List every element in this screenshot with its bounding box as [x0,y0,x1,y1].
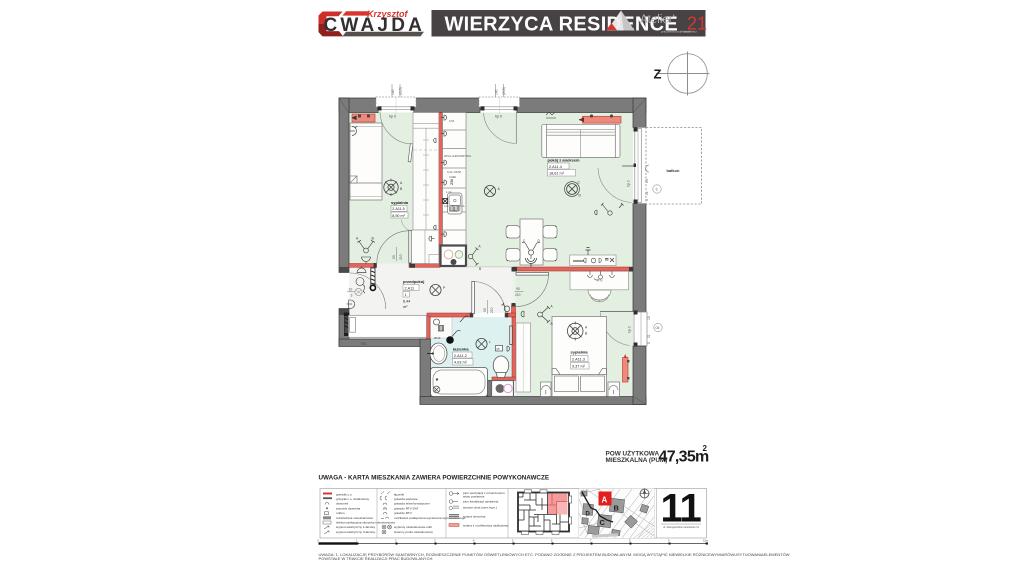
svg-text:gniazda teleinformatyczne: gniazda teleinformatyczne [394,502,430,506]
svg-text:2.A11: 2.A11 [405,286,415,290]
svg-text:Z: Z [654,67,662,82]
svg-text:A: A [602,496,608,505]
svg-text:10: 10 [647,316,651,320]
svg-text:2: 2 [395,539,397,543]
svg-text:4: 4 [473,539,475,543]
svg-text:90: 90 [516,287,520,291]
svg-text:B: B [551,322,553,326]
svg-text:2.A11.5: 2.A11.5 [392,207,404,211]
svg-text:grzejnik c.o.: grzejnik c.o. [336,492,353,496]
svg-text:210: 210 [515,293,521,297]
svg-text:5: 5 [512,539,514,543]
svg-text:21: 21 [645,191,649,195]
svg-text:140: 140 [495,89,499,95]
svg-text:ZM: ZM [449,179,454,185]
svg-text:2.A11.4: 2.A11.4 [549,165,562,169]
svg-text:balkon: balkon [667,168,680,173]
svg-text:wlotu powietrza: wlotu powietrza [463,494,485,498]
svg-text:18,61 m²: 18,61 m² [549,172,565,176]
svg-text:140: 140 [391,89,395,95]
svg-text:5: 5 [647,342,651,344]
svg-text:wymiar okna (szer./wys.): wymiar okna (szer./wys.) [463,506,497,510]
svg-text:6,44: 6,44 [403,300,410,304]
svg-text:hp 0: hp 0 [495,115,502,119]
svg-text:RTV: RTV [598,279,603,283]
svg-text:WPC/L ZLEWOZMYWKA: WPC/L ZLEWOZMYWKA [444,155,472,158]
svg-text:przycisk dzwonka: przycisk dzwonka [336,506,361,510]
svg-text:2F44: 2F44 [434,336,441,340]
svg-text:telekomunikacyjna skrzynka mie: telekomunikacyjna skrzynka mieszkaniowa [336,521,395,525]
svg-text:ściana z możliwością nadbudowy: ściana z możliwością nadbudowy [463,523,509,527]
svg-text:D: D [586,512,591,518]
svg-text:0,3m ZMYWARKA: 0,3m ZMYWARKA [444,205,465,208]
svg-text:wypust elektryczny 1-fazowy: wypust elektryczny 1-fazowy [336,525,376,529]
svg-text:9,37 m²: 9,37 m² [572,365,586,369]
svg-text:2: 2 [703,444,708,453]
svg-text:architekci: architekci [684,30,697,34]
svg-text:łazienka: łazienka [453,347,469,352]
svg-text:21: 21 [647,334,651,338]
svg-text:1,1m: 1,1m [446,190,453,194]
svg-text:CHEF: CHEF [449,175,457,179]
svg-text:(215): (215) [399,87,403,95]
svg-text:(215): (215) [502,87,506,95]
svg-text:04: 04 [656,326,660,330]
svg-text:UWAGA - KARTA MIESZKANIA ZAWIE: UWAGA - KARTA MIESZKANIA ZAWIERA POWIERZ… [319,475,550,482]
svg-text:grzejnik c.o. drabinkowy: grzejnik c.o. drabinkowy [336,497,369,501]
svg-text:rozdzielnica mieszkaniowa: rozdzielnica mieszkaniowa [336,516,373,520]
svg-text:dzwonek: dzwonek [336,502,349,506]
svg-text:3: 3 [656,188,658,192]
svg-text:8: 8 [629,539,631,543]
svg-text:B: B [614,504,620,513]
svg-text:47,35m: 47,35m [659,449,710,466]
svg-text:przedpokój: przedpokój [403,279,424,284]
svg-text:8,90 m²: 8,90 m² [392,214,405,218]
svg-text:ul. Starogardzka mieszkanie 11: ul. Starogardzka mieszkanie 11 [663,525,700,529]
svg-text:10m: 10m [703,539,708,543]
svg-text:7: 7 [590,539,592,543]
svg-text:L: L [489,340,491,344]
svg-text:2.A11.3: 2.A11.3 [572,357,585,361]
svg-text:0,2m OKAP: 0,2m OKAP [447,170,461,174]
svg-text:gniazdo RTV-SAT: gniazdo RTV-SAT [394,506,419,510]
svg-text:10: 10 [349,288,353,292]
svg-text:wypust elektryczny 3-fazowy: wypust elektryczny 3-fazowy [336,530,376,534]
svg-text:STME: STME [450,209,458,213]
svg-text:3: 3 [434,539,436,543]
svg-text:5: 5 [645,199,649,201]
svg-text:wypusty oświetleniowe sufit: wypusty oświetleniowe sufit [394,525,432,529]
svg-text:1: 1 [405,293,407,297]
svg-text:70B: 70B [360,342,367,346]
svg-text:pokój z aneksem: pokój z aneksem [548,158,580,163]
svg-text:sypialnia: sypialnia [391,200,409,205]
svg-text:pion kanalizacji sanitarnej: pion kanalizacji sanitarnej [463,500,499,504]
svg-text:0,5h: 0,5h [449,119,455,123]
svg-text:CWAJDA: CWAJDA [324,15,426,36]
svg-text:gniazda wtykowe: gniazda wtykowe [394,497,418,501]
svg-text:05: 05 [497,347,501,351]
svg-text:210: 210 [490,307,494,313]
svg-text:2.A11.2: 2.A11.2 [454,354,467,358]
svg-text:6: 6 [551,539,553,543]
svg-text:POWSTAŁE W TRAKCIE REALIZACJI: POWSTAŁE W TRAKCIE REALIZACJI PRAC BUDOW… [319,556,434,561]
svg-text:unifon: unifon [336,511,345,515]
svg-text:B: B [479,267,481,271]
svg-text:210: 210 [399,254,403,260]
svg-text:4,03 m²: 4,03 m² [454,361,468,365]
svg-text:ściana nienośna: ściana nienośna [463,514,486,518]
svg-text:90: 90 [392,255,396,259]
svg-text:20: 20 [645,179,649,183]
svg-text:hp 0: hp 0 [628,326,632,333]
svg-text:3: 3 [351,294,353,298]
svg-text:sypialnia: sypialnia [571,350,589,355]
svg-text:łączniki: łączniki [394,492,404,496]
svg-text:9: 9 [668,539,670,543]
svg-text:ścienny punkt oświetleniowy: ścienny punkt oświetleniowy [394,530,433,534]
svg-text:hp 0: hp 0 [627,180,631,187]
svg-text:0: 0 [318,539,320,543]
svg-text:Atelier': Atelier' [640,14,675,26]
svg-text:gniazdo RTV: gniazdo RTV [394,511,413,515]
svg-text:hp 0: hp 0 [389,115,396,119]
svg-text:90: 90 [483,308,487,312]
svg-text:1: 1 [356,539,358,543]
svg-text:m²: m² [403,305,408,309]
